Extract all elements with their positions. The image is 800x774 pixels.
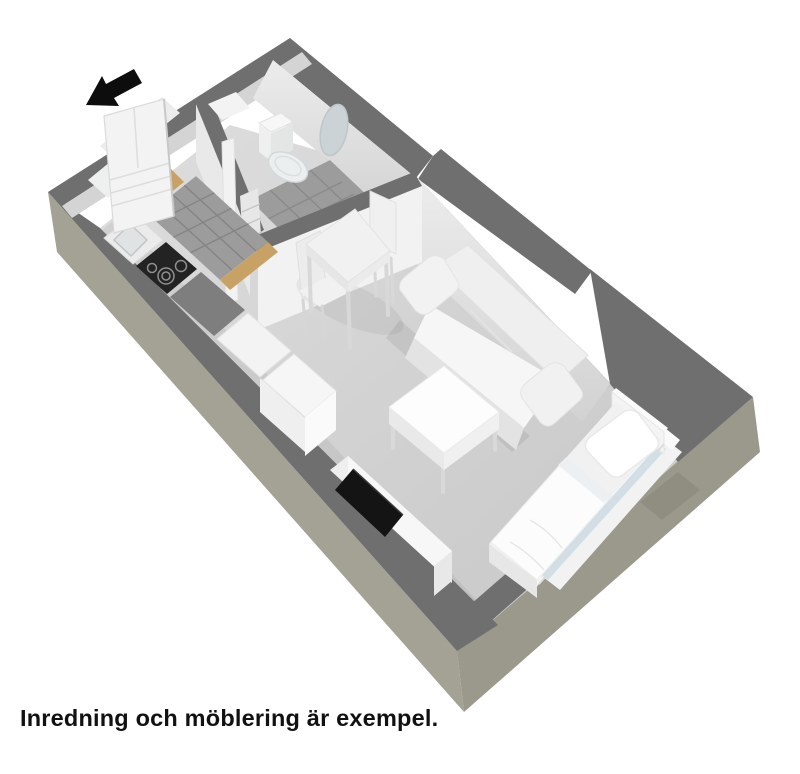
entrance-door: [104, 99, 174, 233]
floorplan-page: Inredning och möblering är exempel.: [0, 0, 800, 774]
door-leaf: [104, 99, 174, 233]
floorplan-3d-rendering: Inredning och möblering är exempel.: [0, 0, 800, 774]
caption-text: Inredning och möblering är exempel.: [20, 705, 438, 731]
entrance-arrow-icon: [86, 69, 142, 106]
